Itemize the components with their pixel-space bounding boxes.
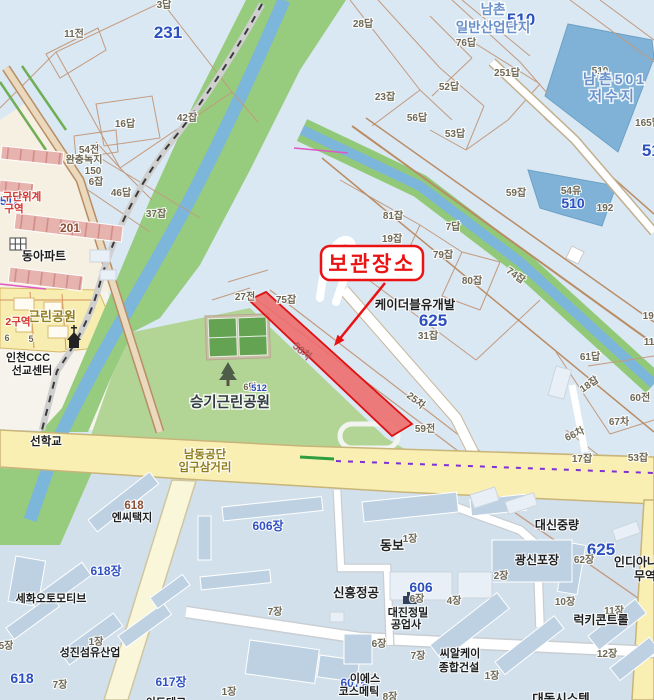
map-label: 남촌501 — [583, 71, 647, 87]
map-label: 56답 — [407, 112, 428, 124]
map-label: 625 — [419, 311, 447, 330]
map-label: 남촌 — [481, 1, 506, 17]
map-label: 7답 — [446, 221, 462, 233]
map-label: 60전 — [630, 391, 650, 404]
map-label: 53답 — [445, 128, 466, 140]
map-label: 42잡 — [177, 112, 198, 124]
map-label: 세화오토모티브 — [16, 591, 87, 605]
map-label: 7장 — [411, 649, 427, 662]
map-label: 광신포장 — [515, 552, 559, 567]
map-label: 일반산업단지 — [456, 19, 531, 35]
map-label: 201 — [60, 221, 80, 235]
map-label: 618 — [124, 500, 144, 512]
map-label: 대진정밀 — [388, 605, 428, 619]
map-label: 7장 — [268, 605, 284, 618]
map-label: 1장 — [222, 685, 238, 698]
map-label: 구단위계 — [3, 190, 42, 203]
map-label: 510 — [561, 195, 585, 211]
map-label: 동보 — [380, 538, 404, 553]
map-label: 7장 — [53, 678, 69, 691]
map-label: 인디아나 — [614, 554, 654, 569]
map-label: 17잡 — [572, 453, 593, 465]
map-label: 엔씨택지 — [112, 510, 152, 524]
map-canvas[interactable]: 3답23111전16답42잡28답510남촌일반산업단지76답251답23잡52… — [0, 0, 654, 700]
map-label: 5장 — [0, 639, 14, 652]
map-label: 618 — [10, 670, 34, 686]
map-label: 대신중량 — [535, 517, 579, 532]
map-label: 31잡 — [418, 330, 439, 342]
map-label: 37잡 — [146, 208, 167, 220]
map-label: 150 — [85, 166, 102, 177]
map-label: 선교센터 — [12, 363, 52, 377]
sports-courts — [205, 314, 270, 360]
map-label: 231 — [154, 23, 182, 42]
map-label: 2장 — [494, 569, 510, 582]
map-label: 공업사 — [391, 617, 422, 631]
map-label: 81잡 — [383, 210, 404, 222]
map-label: 606장 — [252, 519, 283, 533]
map-label: 80잡 — [462, 275, 483, 287]
map-label: 3답 — [157, 0, 173, 11]
map-label: 53잡 — [628, 452, 649, 464]
map-label: 46답 — [111, 187, 132, 199]
map-label: 저수지 — [589, 88, 637, 104]
map-label: 165답 — [635, 117, 654, 129]
map-label: 남동공단 — [184, 447, 227, 461]
map-label: 27전 — [235, 290, 255, 303]
map-label: 510 — [642, 141, 654, 160]
map-label: 케이더블유개발 — [375, 297, 456, 312]
map-label: 19잡 — [382, 233, 403, 245]
map-label: 6장 — [410, 592, 426, 605]
map-label: 무역 — [634, 568, 654, 583]
map-label: 이에스 — [350, 671, 380, 685]
map-label: 193 — [643, 311, 654, 322]
map-label: 동아파트 — [22, 248, 66, 263]
map-label: 6잡 — [89, 176, 105, 188]
map-label: 대동시스템 — [532, 691, 590, 700]
map-label: 신흥정공 — [333, 585, 380, 600]
map-label: 5 — [28, 334, 33, 344]
map-label: 79잡 — [433, 249, 454, 261]
map-label: 606 — [409, 579, 433, 595]
map-label: 61답 — [580, 351, 601, 363]
map-label: 럭키콘트롤 — [573, 612, 628, 627]
map-label: 23잡 — [375, 91, 396, 103]
map-label: 62장 — [574, 553, 595, 566]
map-label: 입구삼거리 — [179, 460, 232, 474]
map-label: 종합건설 — [439, 660, 479, 674]
map-label: 6 — [4, 333, 9, 343]
map-label: 11전 — [64, 27, 84, 40]
map-label: 4장 — [447, 594, 463, 607]
map-label: 59잡 — [506, 187, 527, 199]
map-label: 완충녹지 — [66, 153, 103, 166]
map-label: 11 — [644, 337, 654, 348]
map-label: 2구역 — [5, 315, 30, 328]
map-label: 6장 — [372, 637, 388, 650]
map-label: 성진섬유산업 — [60, 645, 121, 659]
storage-callout-label: 보관장소 — [328, 253, 415, 276]
map-label: 28답 — [353, 18, 374, 30]
map-label: 12장 — [597, 647, 618, 660]
map-label: 근린공원 — [28, 309, 76, 324]
map-label: 67차 — [609, 415, 630, 428]
map-label: 승기근린공원 — [190, 393, 270, 411]
map-label: 75잡 — [276, 294, 297, 306]
map-label: 8장 — [383, 690, 399, 700]
map-label: 512 — [251, 383, 267, 394]
map-label: 76답 — [456, 37, 477, 49]
map-label: 선학교 — [30, 434, 62, 448]
map-label: 617장 — [155, 675, 186, 689]
map-label: 59전 — [415, 422, 435, 435]
map-label: 16답 — [115, 118, 136, 130]
map-label: 1장 — [403, 532, 419, 545]
map-label: 251답 — [494, 67, 521, 79]
map-label: 코스메틱 — [339, 684, 379, 698]
map-label: 씨알케이 — [440, 646, 480, 660]
map-label: 구역 — [4, 202, 23, 215]
map-label: 1장 — [485, 669, 501, 682]
map-label: 52답 — [439, 81, 460, 93]
map-label: 10장 — [555, 595, 576, 608]
map-label: 인천CCC — [6, 350, 50, 364]
map-label: 618장 — [90, 564, 121, 578]
map-label: 192 — [597, 203, 614, 214]
